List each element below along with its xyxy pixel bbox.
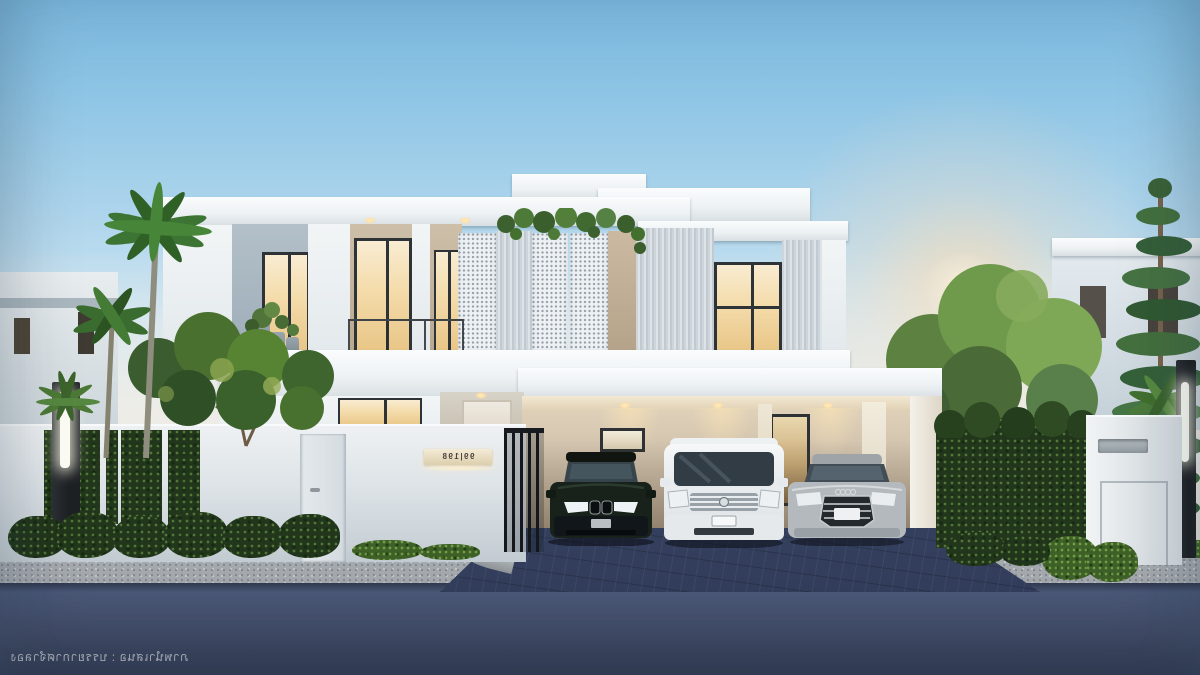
architectural-render: 99|198 — [0, 0, 1200, 675]
dark-green-suv — [546, 450, 656, 546]
gate-door-handle — [310, 488, 320, 492]
address-plaque: 99|198 — [424, 449, 492, 465]
eave-downlight — [364, 217, 376, 224]
studio-watermark: ภาพนำเสนอ : บรรยากาศจำลอง — [10, 648, 188, 667]
address-plaque-text: 99|198 — [441, 449, 474, 465]
right-bush — [1086, 542, 1138, 582]
low-hedge-bush — [222, 516, 282, 558]
gate-grass-tuft — [420, 544, 480, 560]
studio-watermark-text: ภาพนำเสนอ : บรรยากาศจำลอง — [10, 648, 188, 667]
eave-downlight — [459, 217, 471, 224]
low-hedge-bush — [56, 512, 118, 558]
upper-corner-pier-right — [822, 240, 846, 354]
low-hedge-bush — [278, 514, 340, 558]
low-hedge-bush — [164, 512, 228, 558]
white-mpv-van — [660, 436, 788, 548]
light-strip — [1181, 382, 1189, 462]
right-bush-dark — [946, 532, 1006, 566]
slat-cladding-right-end — [782, 240, 822, 354]
palm-trees — [6, 138, 262, 460]
mailbox-slot — [1098, 439, 1148, 453]
window-transom-bar — [714, 306, 782, 309]
porch-downlight — [475, 392, 487, 399]
low-hedge-bush — [112, 516, 170, 558]
right-bush-dark — [1000, 536, 1050, 566]
plaque-underglow — [418, 465, 498, 471]
fence-pillar-right — [1086, 415, 1182, 565]
hanging-vine-plants — [490, 208, 650, 260]
tall-hedge-top — [930, 398, 1096, 438]
gate-grass-tuft — [352, 540, 422, 560]
carport-fascia — [518, 368, 942, 398]
silver-sedan — [784, 452, 910, 546]
entrance-gate — [504, 428, 544, 552]
